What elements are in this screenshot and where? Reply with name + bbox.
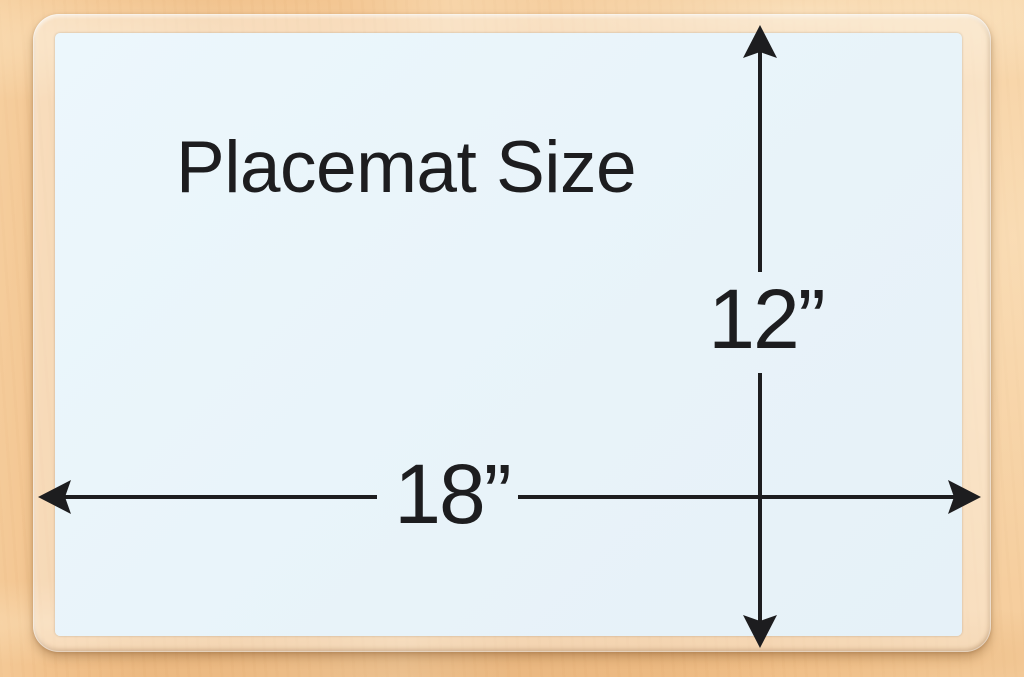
width-dimension-label: 18” <box>352 452 552 536</box>
dimension-overlay <box>0 0 1024 677</box>
height-dimension-label: 12” <box>666 277 866 361</box>
diagram-title: Placemat Size <box>176 131 636 204</box>
